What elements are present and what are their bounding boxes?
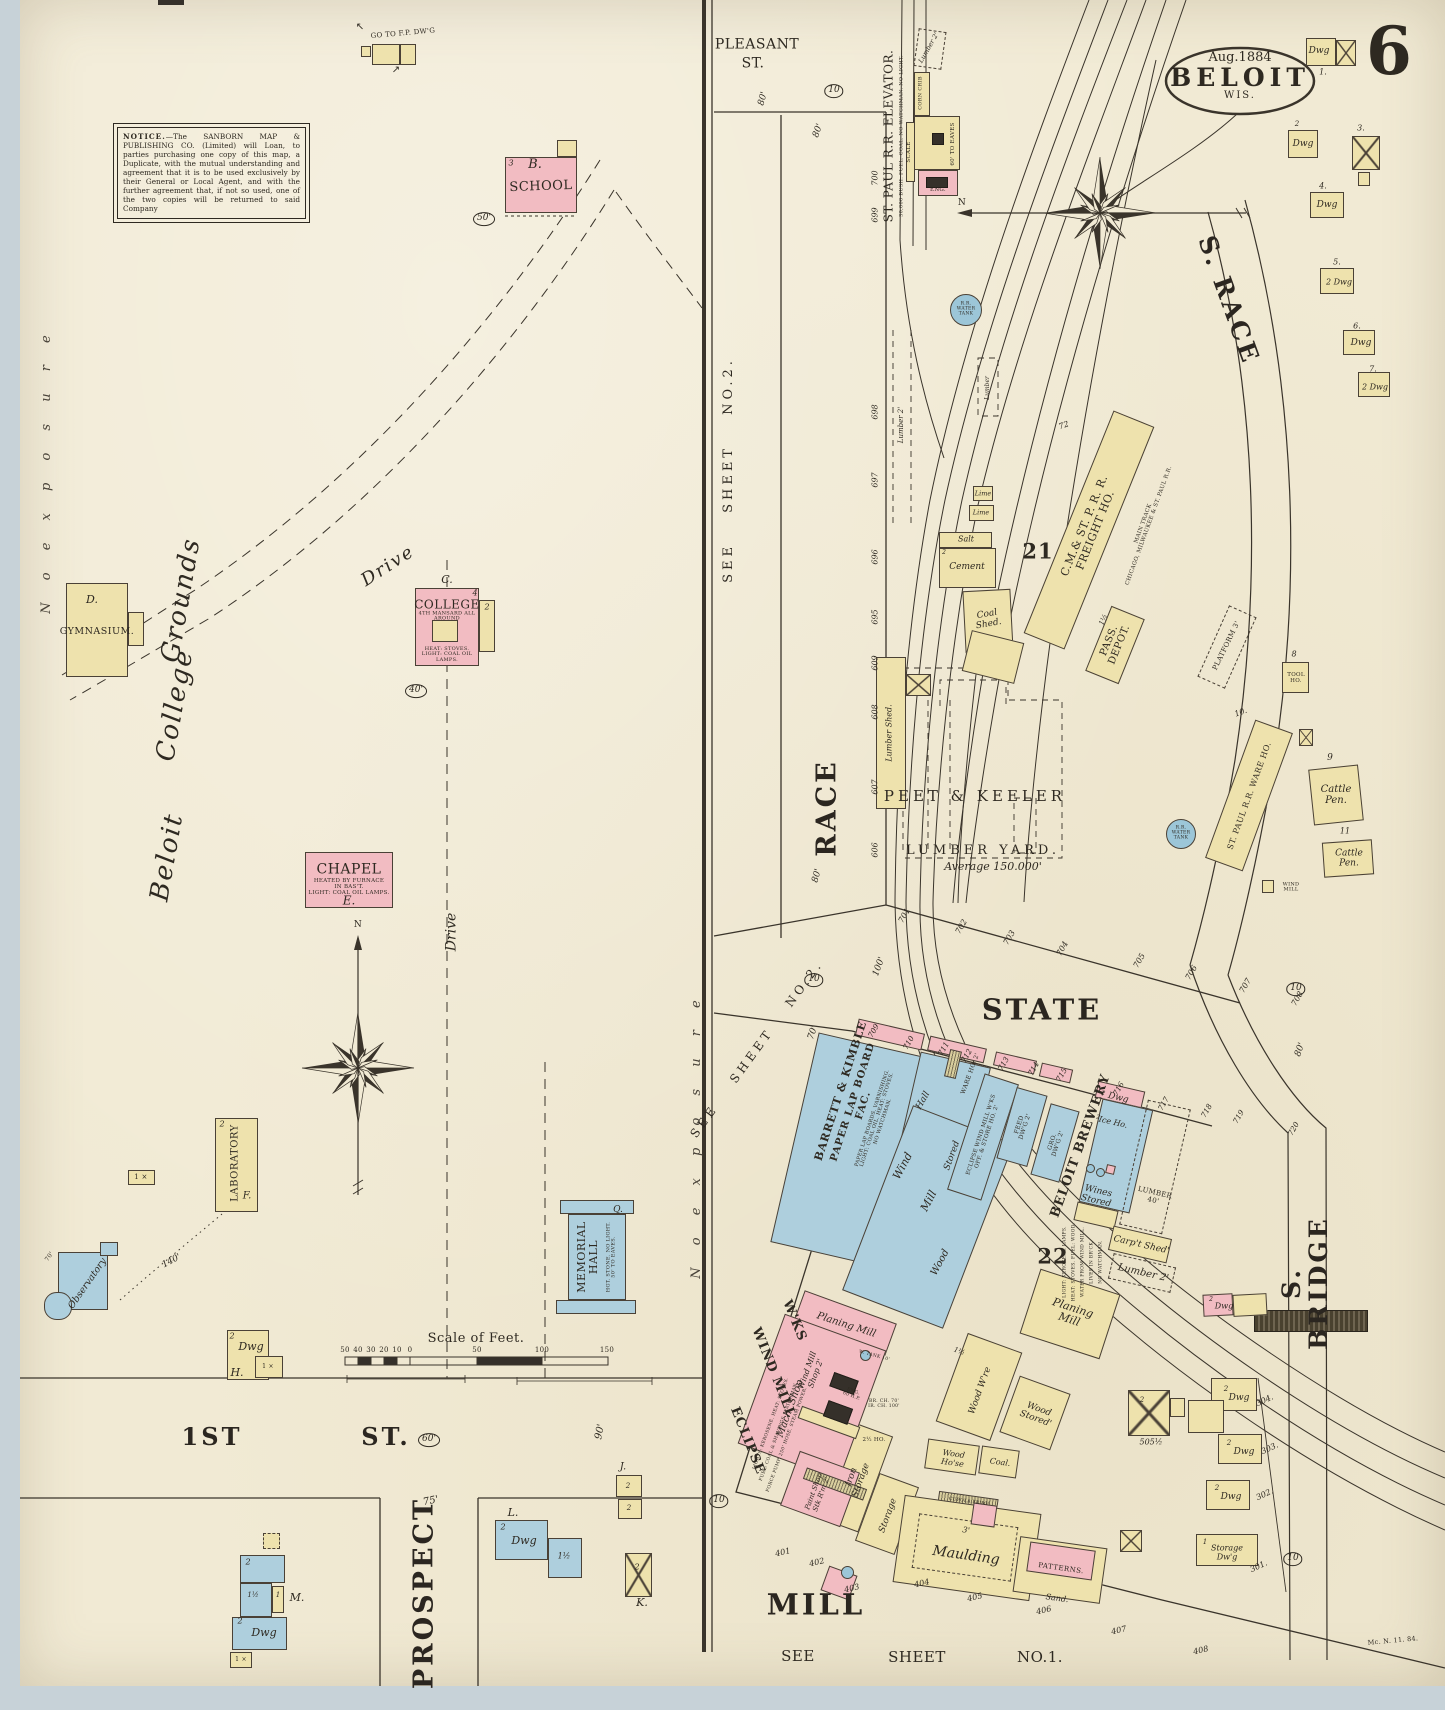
block-circle: 10 <box>824 84 843 98</box>
cattle-pen-label: Cattle Pen. <box>1321 785 1352 807</box>
compass-n: N <box>354 921 362 931</box>
cattle-pen-label: Cattle Pen. <box>1335 849 1363 868</box>
dwelling-number: 1 <box>276 1592 280 1600</box>
brewery-note: NO WATCHMAN. <box>1100 1240 1105 1283</box>
scale-title: Scale of Feet. <box>428 1332 525 1346</box>
width-circle: 40' <box>405 684 427 698</box>
tool-house-label: TOOL HO. <box>1287 673 1305 685</box>
dwelling-number: 1½ <box>247 1592 258 1600</box>
lot-number: 608 <box>872 704 881 719</box>
lot-number: 700 <box>872 170 881 185</box>
memorial-hall-note: HGT. STONE. NO LIGHT. 50' TO EAVES. <box>607 1222 618 1292</box>
lot-number: 505½ <box>1139 1439 1162 1448</box>
dwelling-number: 2 <box>1140 1397 1144 1405</box>
well <box>841 1566 854 1579</box>
house-note: 2½ HO. <box>862 1438 885 1444</box>
street-pleasant: PLEASANT <box>715 37 799 52</box>
dwelling-note: 1 × <box>262 1364 274 1370</box>
dwelling-label: Dwg <box>1293 140 1314 150</box>
laboratory-label: LABORATORY <box>231 1124 242 1202</box>
block-number: 22 <box>1037 1246 1068 1269</box>
dwelling-number: 2 <box>634 1564 639 1573</box>
dwelling-label: Dwg <box>238 1341 263 1353</box>
lot-number: 606 <box>872 842 881 857</box>
chimney-note: BR. CH. 70' IR. CH. 100' <box>868 1400 900 1410</box>
scale-tick: 100 <box>535 1347 549 1355</box>
school-letter: B. <box>528 158 542 172</box>
dwelling-label: 2 Dwg <box>1326 279 1352 288</box>
dwelling-number: 2 <box>1215 1485 1219 1493</box>
dwelling-label: Dwg <box>251 1627 276 1639</box>
see-sheet-1: SHEET <box>888 1649 946 1665</box>
college-inner <box>432 620 458 642</box>
dwelling-number: 2 <box>229 1333 234 1342</box>
wind-mill-base <box>1262 880 1274 893</box>
memorial-hall-flange <box>556 1300 636 1314</box>
lot-number: 695 <box>872 609 881 624</box>
dwelling <box>372 44 400 65</box>
street-state: STATE <box>982 994 1103 1025</box>
scale-tick: 50 <box>472 1347 482 1355</box>
scale-tick: 40 <box>353 1347 363 1355</box>
shed <box>1358 172 1370 186</box>
elevator-note: SCALE <box>907 141 913 162</box>
block-circle: 10 <box>709 1494 728 1508</box>
dwelling-number: 1½ <box>558 1553 571 1562</box>
chapel-label: CHAPEL <box>317 862 382 877</box>
dwelling-label: Dwg <box>1221 1493 1242 1503</box>
brewery-note: WATER FROM WIND MILL. <box>1082 1227 1087 1297</box>
sheet-number: 6 <box>1366 18 1412 84</box>
dwelling-number: 3. <box>1357 125 1365 134</box>
observatory-annex <box>100 1242 118 1256</box>
dwelling-note: 1 × <box>235 1657 247 1663</box>
scale-tick: 150 <box>600 1347 614 1355</box>
elevator-label: ST. PAUL R.R. ELEVATOR. <box>883 50 896 223</box>
lot-number: 607 <box>872 779 881 794</box>
dwelling-number: 2 <box>1209 1297 1213 1303</box>
dwelling-number: 4. <box>1319 183 1327 192</box>
elevator-note: ENG. <box>930 188 946 194</box>
lot-number: 699 <box>872 207 881 222</box>
cattle-pen-number: 9 <box>1327 754 1333 764</box>
scale-tick: 20 <box>379 1347 389 1355</box>
dwelling-label: Dwg <box>1317 201 1338 211</box>
dwelling-number: 5. <box>1333 259 1341 268</box>
block-letter: J. <box>620 1463 626 1474</box>
lot-number: 697 <box>872 472 881 487</box>
dwelling-number: 7. <box>1369 366 1377 375</box>
street-mill: MILL <box>767 1589 865 1620</box>
lumber-yard-label: LUMBER YARD. <box>906 844 1060 858</box>
tool-house-number: 8 <box>1291 651 1296 660</box>
college-letter: C. <box>441 574 453 586</box>
college-note: 4TH MANSARD ALL AROUND <box>419 612 476 623</box>
block-letter: M. <box>290 1592 305 1604</box>
compass-n: N <box>958 199 966 209</box>
notice-body: —The SANBORN MAP & PUBLISHING CO. (Limit… <box>123 132 300 213</box>
dwelling-number: 1 <box>1203 1539 1207 1547</box>
street-race: RACE <box>812 759 841 856</box>
school-annex <box>557 140 577 157</box>
title-block: Aug.1884 BELOIT WIS. <box>1167 50 1313 114</box>
vat <box>1096 1168 1105 1177</box>
dwelling-label: Dwg <box>1351 339 1372 349</box>
lumber-shed-label: Lumber Shed. <box>886 704 895 761</box>
elevator-core <box>932 133 944 145</box>
width-circle: 60' <box>418 1433 440 1447</box>
lot-number: 609 <box>872 655 881 670</box>
lumber-yard-note: Average 150.000' <box>944 861 1042 873</box>
tank-label: R.R. WATER TANK <box>957 303 976 318</box>
city-name: BELOIT <box>1167 65 1313 90</box>
laboratory-number: 2 <box>219 1121 224 1130</box>
moulding-number: 3' <box>962 1526 970 1536</box>
memorial-hall-letter: Q. <box>613 1206 623 1216</box>
lot-number: 696 <box>872 549 881 564</box>
dwelling-m <box>240 1583 272 1617</box>
dwelling-label: Dwg <box>511 1535 536 1547</box>
dwelling <box>1188 1400 1224 1433</box>
dwelling-number: 6. <box>1353 323 1361 332</box>
lot-number: 698 <box>872 404 881 419</box>
drive-paths <box>62 160 702 1378</box>
drive-label: Drive <box>444 913 459 952</box>
shed <box>1170 1398 1185 1417</box>
shed <box>1299 729 1313 746</box>
dwelling-number: 2 <box>237 1618 242 1627</box>
street-pleasant-st: ST. <box>742 56 765 71</box>
dwelling-number: 2 <box>500 1524 505 1533</box>
see-sheet-1: NO.1. <box>1017 1649 1063 1665</box>
no-exposure: N o e x p o s u r e <box>40 326 54 614</box>
brewery-note: HEAT: STOVES. FUEL: WOOD. <box>1073 1223 1078 1302</box>
building-k <box>625 1553 652 1597</box>
dwelling-number: 1. <box>1319 69 1327 78</box>
dwelling <box>400 44 416 65</box>
dwelling-strip <box>1232 1293 1267 1317</box>
lumber-note: Lumber 2' <box>898 407 906 443</box>
dwelling <box>1336 40 1356 66</box>
arrow-icon: ↖ <box>356 23 364 34</box>
lime-label: Lime <box>973 509 989 516</box>
elevator-note: 30,000 BUSH. FUEL: COAL. NO WATCHMAN. NO… <box>899 55 904 217</box>
street-1st-st: ST. <box>361 1424 410 1450</box>
memorial-hall-label: MEMORIAL HALL <box>576 1221 600 1292</box>
brewery-note: LIVES IN BR'CK. <box>1091 1240 1096 1284</box>
laboratory-letter: F. <box>243 1192 252 1203</box>
block-number: 21 <box>1022 541 1053 564</box>
scale-tick: 10 <box>392 1347 402 1355</box>
college-label: COLLEGE <box>414 599 480 612</box>
cattle-pen-number: 11 <box>1340 828 1350 837</box>
dwelling-number: 2 <box>1227 1440 1231 1448</box>
scale-bar <box>345 1357 652 1385</box>
shed <box>1120 1530 1142 1552</box>
dwelling <box>1352 136 1380 170</box>
dwelling-label: Dwg <box>1234 1448 1255 1458</box>
gymnasium-label: GYMNASIUM. <box>60 627 135 637</box>
vat <box>1086 1164 1095 1173</box>
college-note: HEAT: STOVES. LIGHT: COAL OIL LAMPS. <box>422 647 472 663</box>
tank-label: R.R. WATER TANK <box>1172 827 1191 842</box>
peet-keeler-label: PEET & KEELER <box>884 788 1066 804</box>
elevator-note: 60' TO EAVES <box>951 122 957 165</box>
scale-tick: 30 <box>366 1347 376 1355</box>
cement-number: 2 <box>942 550 946 556</box>
block-circle: 10 <box>1286 982 1305 996</box>
sanborn-map-sheet: GO TO F.P. DW'G↖↗3B.SCHOOL50'GroundsColl… <box>0 0 1445 1710</box>
dwelling-number: 2 <box>627 1505 631 1513</box>
college-annex-number: 2 <box>484 604 489 613</box>
street-s-bridge: S. BRIDGE <box>1278 1213 1332 1353</box>
scan-blemish <box>158 0 184 5</box>
see-sheet-1: SEE <box>781 1648 815 1664</box>
railroad-tracks <box>895 0 1445 1530</box>
elevator-note: CORN CRIB <box>918 76 923 110</box>
wind-mill-label: WIND MILL <box>1283 883 1300 894</box>
dwelling-number: 2 <box>626 1483 630 1491</box>
scale-tick: 50 <box>340 1347 350 1355</box>
gymnasium-letter: D. <box>86 594 98 606</box>
dwelling-label: 2 Dwg <box>1362 384 1388 393</box>
school-label: SCHOOL <box>509 179 573 195</box>
street-prospect: PROSPECT <box>409 1497 438 1689</box>
see-sheet-2: SEE SHEET NO.2. <box>722 357 736 583</box>
notice-heading: NOTICE. <box>123 132 166 141</box>
block-circle: 10 <box>1283 1552 1302 1566</box>
outbuilding-note: 1 × <box>134 1174 147 1182</box>
arrow-icon: ↗ <box>392 66 400 77</box>
lumber-shed-annex <box>906 674 931 696</box>
notice-box: NOTICE.—The SANBORN MAP & PUBLISHING CO.… <box>113 123 310 223</box>
dwelling-label: Dwg <box>1215 1303 1233 1312</box>
cement-label: Cement <box>949 563 985 573</box>
shed <box>263 1533 280 1549</box>
compass-rose <box>302 935 414 1195</box>
width-circle: 50' <box>473 212 495 226</box>
block-letter: H. <box>230 1367 243 1379</box>
block-letter: K. <box>636 1597 648 1609</box>
dwelling-label: Dwg <box>1229 1394 1250 1404</box>
block-circle: 10 <box>804 973 823 987</box>
block-letter: L. <box>508 1507 519 1519</box>
lime-label: Lime <box>975 490 991 497</box>
storage-dwg-label: Storage Dw'g <box>1211 1544 1243 1561</box>
school-number: 3 <box>508 160 513 169</box>
dwelling-number: 2 <box>1224 1386 1228 1394</box>
dwelling-number: 2 <box>1295 121 1299 129</box>
wood-house-label: Wood Ho'se <box>940 1449 965 1469</box>
shed <box>361 46 371 57</box>
dwelling-number: 2 <box>245 1559 250 1568</box>
barn <box>1128 1390 1170 1436</box>
chapel-letter: E. <box>343 895 356 908</box>
scale-tick: 0 <box>408 1347 413 1355</box>
lumber-note: Lumber <box>985 376 991 400</box>
street-1st: 1ST <box>182 1424 243 1450</box>
salt-label: Salt <box>958 536 974 545</box>
